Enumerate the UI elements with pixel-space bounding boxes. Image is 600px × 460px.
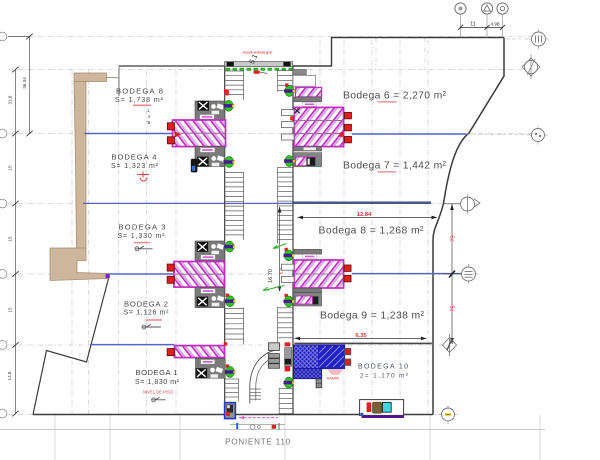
svg-text:4.98: 4.98 (491, 22, 500, 27)
svg-text:75: 75 (451, 306, 457, 312)
svg-text:S= 1,830 m²: S= 1,830 m² (135, 379, 180, 386)
svg-text:PONIENTE 110: PONIENTE 110 (225, 437, 291, 446)
svg-text:s: s (148, 114, 150, 119)
svg-text:BODEGA 1: BODEGA 1 (136, 368, 178, 377)
svg-text:BODEGA 2: BODEGA 2 (124, 300, 168, 309)
svg-text:15: 15 (8, 165, 13, 171)
svg-text:12.84: 12.84 (357, 212, 372, 218)
svg-text:NIVEL DE PISO: NIVEL DE PISO (143, 389, 174, 394)
svg-text:el grado vehicular ppal: el grado vehicular ppal (243, 50, 272, 54)
svg-text:BODEGA 3: BODEGA 3 (119, 223, 166, 232)
svg-text:75: 75 (451, 236, 457, 242)
svg-text:S= 1,738 m²: S= 1,738 m² (115, 97, 164, 104)
svg-text:6.35: 6.35 (355, 333, 367, 339)
svg-text:Bodega 8 = 1,268 m²: Bodega 8 = 1,268 m² (319, 226, 425, 237)
svg-text:BODEGA 4: BODEGA 4 (112, 153, 157, 162)
svg-text:16.70: 16.70 (268, 269, 274, 283)
svg-text:RAMPA: RAMPA (327, 377, 340, 381)
svg-text:⇅: ⇅ (147, 120, 151, 125)
svg-text:14.8: 14.8 (7, 371, 12, 380)
svg-text:36.34: 36.34 (22, 77, 27, 89)
svg-text:S= 1,323 m²: S= 1,323 m² (111, 163, 159, 170)
svg-text:Bodega 7 = 1,442 m²: Bodega 7 = 1,442 m² (343, 161, 447, 172)
svg-text:15: 15 (8, 307, 13, 313)
svg-text:BODEGA 8: BODEGA 8 (116, 87, 163, 96)
svg-text:2= 1,170 m²: 2= 1,170 m² (360, 373, 409, 380)
svg-text:1,: 1, (147, 108, 151, 113)
svg-text:15: 15 (8, 236, 13, 242)
svg-text:Bodega 9 = 1,238 m²: Bodega 9 = 1,238 m² (320, 310, 425, 321)
svg-text:31.8: 31.8 (8, 95, 13, 104)
svg-text:BODEGA 10: BODEGA 10 (358, 363, 408, 370)
svg-text:S= 1,126 m²: S= 1,126 m² (124, 310, 170, 317)
svg-text:11: 11 (470, 22, 475, 28)
svg-text:S= 1,330 m²: S= 1,330 m² (118, 233, 166, 240)
svg-text:Bodega 6 = 2,270 m²: Bodega 6 = 2,270 m² (343, 90, 447, 101)
